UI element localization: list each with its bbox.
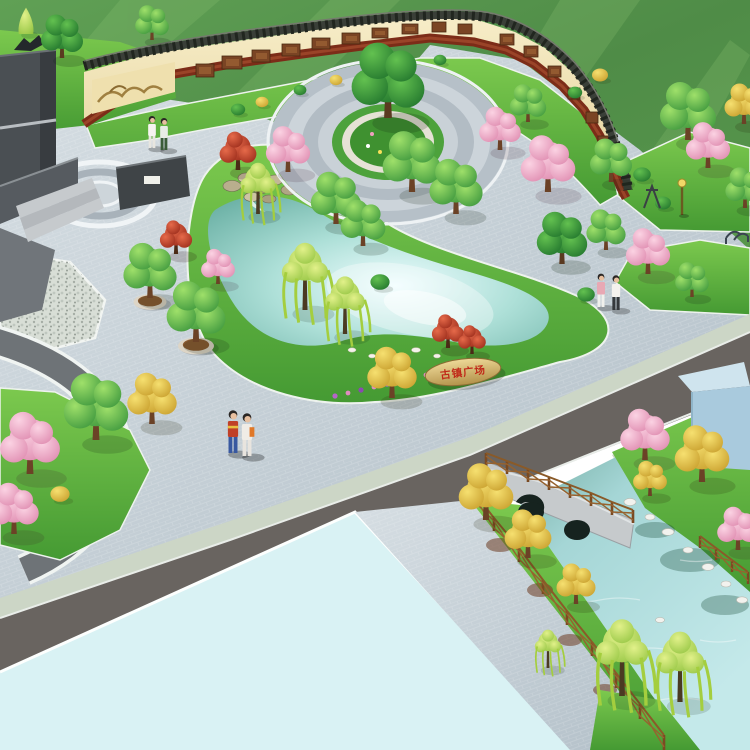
feature-wall-plaque xyxy=(144,176,160,184)
scene-canvas: 古镇广场 xyxy=(0,0,750,750)
landscape-rendering: 古镇广场 xyxy=(0,0,750,750)
